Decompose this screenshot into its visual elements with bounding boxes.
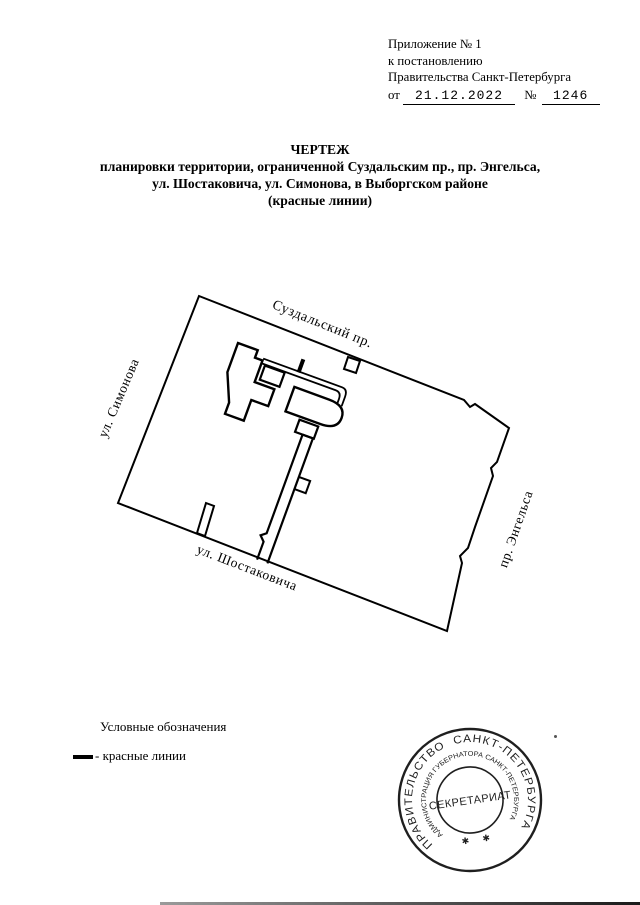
seal-outer-ring-text: ПРАВИТЕЛЬСТВО САНКТ-ПЕТЕРБУРГА [394, 724, 542, 853]
red-line-symbol [73, 755, 93, 759]
red-line-stub [299, 359, 304, 372]
seal-center-text: СЕКРЕТАРИАТ [428, 789, 512, 812]
legend-red-lines-label: - красные линии [95, 748, 186, 764]
seal-star-left: ✱ [461, 836, 470, 847]
territory-boundary-line [118, 296, 509, 631]
parcel-loop-rounded [285, 387, 346, 430]
scan-speck [554, 735, 557, 738]
seal-star-right: ✱ [482, 833, 491, 844]
channel-line-left [252, 433, 302, 560]
channel-line-right [267, 438, 312, 563]
legend-heading: Условные обозначения [100, 719, 226, 735]
government-seal: ПРАВИТЕЛЬСТВО САНКТ-ПЕТЕРБУРГА АДМИНИСТР… [388, 720, 553, 880]
document-page: Приложение № 1 к постановлению Правитель… [0, 0, 640, 905]
parcel-loop-small-rect [260, 366, 285, 387]
channel-top-connector [303, 435, 313, 439]
boundary-spur-bottom [197, 503, 214, 536]
boundary-tab-top [344, 357, 360, 373]
